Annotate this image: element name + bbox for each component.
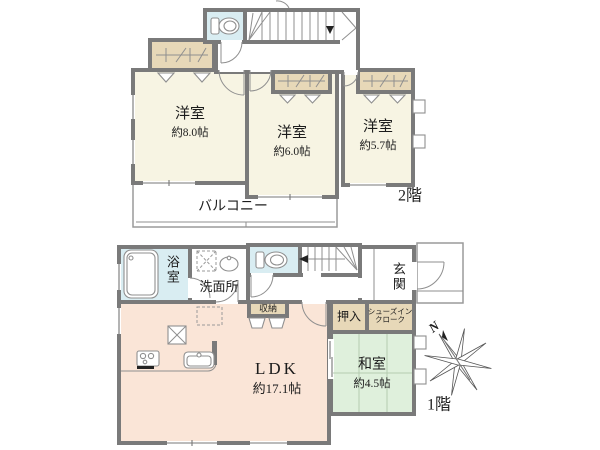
entrance-room — [360, 247, 414, 302]
storage-label: 収納 — [259, 304, 277, 313]
ldk-size: 約17.1帖 — [253, 382, 302, 396]
entrance-label: 玄関 — [391, 262, 405, 292]
room57-name: 洋室 — [363, 120, 393, 136]
washitsu-size: 約4.5帖 — [353, 378, 390, 390]
toilet-icon-2f — [211, 18, 239, 34]
shoe-closet-label: シューズイン クローク — [368, 308, 413, 324]
hall-2f — [216, 42, 358, 72]
bath-label: 浴室 — [165, 255, 179, 285]
compass-icon — [425, 329, 492, 396]
room6-size: 約6.0帖 — [273, 146, 310, 158]
floor1-label: 1階 — [427, 398, 451, 415]
balcony-label: バルコニー — [198, 201, 268, 216]
room57-size: 約5.7帖 — [359, 140, 396, 152]
washitsu-label: 和室 — [358, 359, 386, 374]
toilet-icon-1f — [256, 252, 287, 268]
room6-name: 洋室 — [277, 126, 307, 142]
ldk-label: LDK — [255, 360, 299, 378]
bathtub-icon — [124, 250, 158, 298]
washroom-label: 洗面所 — [199, 280, 238, 294]
oshiire-label: 押入 — [337, 311, 361, 324]
stove-icon — [137, 351, 159, 369]
shoe-closet-line2: クローク — [368, 316, 413, 324]
floorplan: 洋室 約8.0帖 洋室 約6.0帖 洋室 約5.7帖 バルコニー 2階 浴室 洗… — [0, 0, 600, 450]
kitchen-sink-icon — [184, 352, 214, 368]
hall-1f — [248, 275, 360, 302]
room8-name: 洋室 — [175, 107, 205, 123]
pantry-box-icon — [168, 326, 186, 344]
room8-size: 約8.0帖 — [171, 127, 208, 139]
floor2-label: 2階 — [398, 189, 422, 206]
washbasin-icon — [220, 256, 238, 271]
porch-entrance — [417, 243, 463, 303]
